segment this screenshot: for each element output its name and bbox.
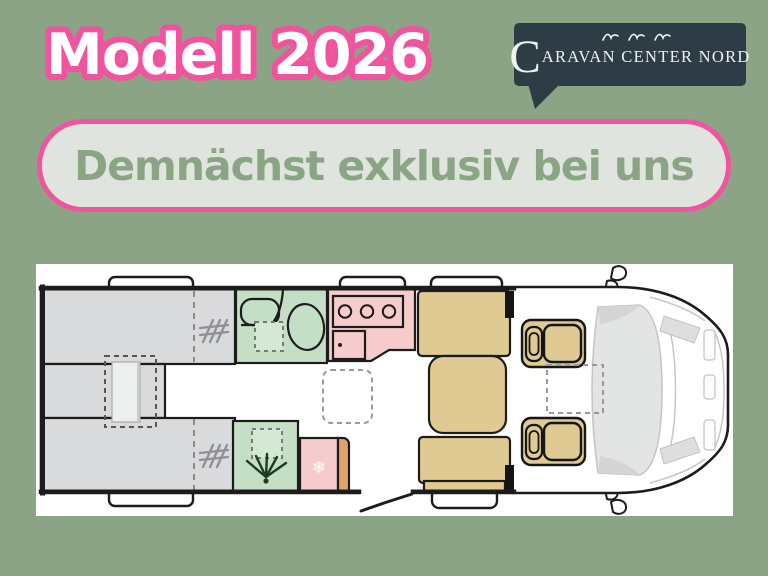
bed-middle-section: [42, 364, 165, 418]
motorhome-floorplan: ❄: [36, 264, 733, 516]
dinette-table: [429, 356, 506, 433]
dinette-bench-bottom: [419, 437, 510, 483]
page-title: Modell 2026: [34, 12, 484, 96]
dinette: [418, 291, 510, 492]
snowflake-icon: ❄: [312, 458, 326, 478]
fridge: ❄: [300, 438, 349, 492]
speech-bubble-tail: [528, 84, 560, 109]
shower-tray-dashed: [255, 322, 283, 351]
bed-bottom: [42, 418, 235, 492]
tap-icon: [338, 343, 342, 347]
seagulls-icon: [602, 31, 678, 43]
bed-step: [112, 362, 140, 422]
announcement-banner: Demnächst exklusiv bei uns: [37, 119, 731, 212]
fridge-side: [338, 438, 349, 492]
cab-seat: [522, 320, 585, 367]
entry-door-swing: [361, 494, 412, 511]
seatbelt-mount: [505, 465, 514, 492]
logo-initial: C: [509, 34, 540, 81]
title-text: Modell 2026: [46, 22, 428, 88]
dinette-bench-top: [418, 291, 510, 356]
announcement-text: Demnächst exklusiv bei uns: [74, 142, 694, 190]
dealer-logo-badge: C ARAVAN CENTER NORD: [514, 23, 746, 86]
bathroom: [236, 289, 327, 363]
floorplan-panel: ❄: [36, 264, 733, 516]
shower: [233, 421, 298, 492]
kitchen: [328, 289, 415, 361]
seatbelt-mount: [505, 291, 514, 318]
logo-name-text: ARAVAN CENTER NORD: [542, 47, 751, 67]
poster: Modell 2026 C ARAVAN CENTER NORD Demnäch…: [0, 0, 768, 576]
grille-icon: [704, 330, 715, 450]
